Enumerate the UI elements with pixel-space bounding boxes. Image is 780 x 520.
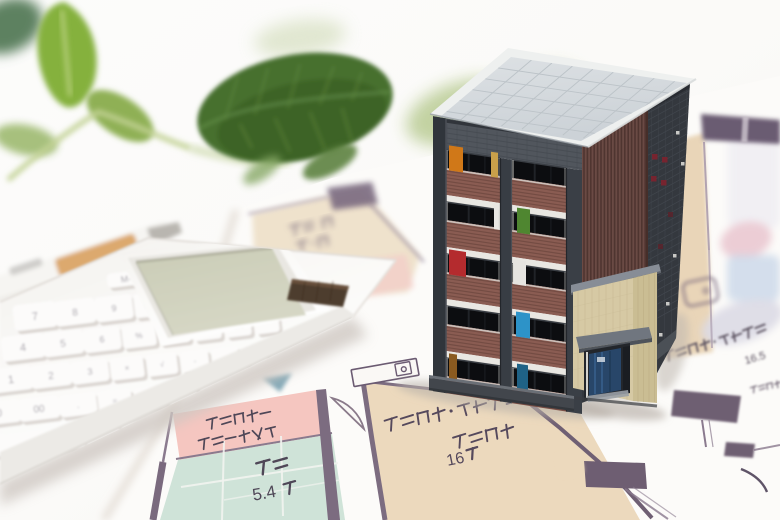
svg-text:00: 00	[33, 403, 46, 415]
svg-text:5.4: 5.4	[251, 482, 278, 505]
svg-text:16: 16	[445, 450, 466, 470]
svg-text:%: %	[135, 331, 143, 341]
